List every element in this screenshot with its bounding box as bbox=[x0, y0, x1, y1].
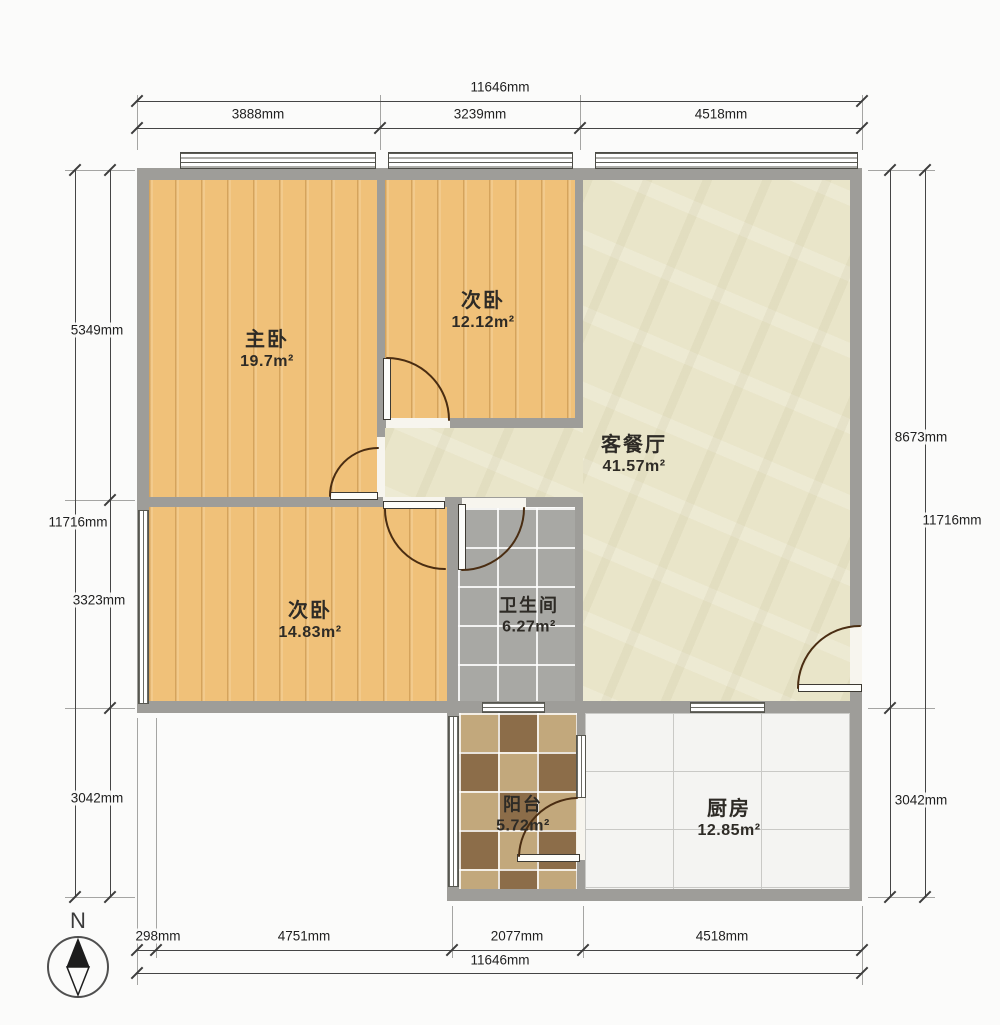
ext-line bbox=[156, 718, 157, 958]
label-bedroom2: 次卧 12.12m² bbox=[451, 284, 514, 332]
floor-plan: N 主卧 19.7m² 次卧 12.12m² 客餐厅 41.57m² 次卧 14… bbox=[0, 0, 1000, 1025]
ext-line bbox=[137, 718, 138, 985]
dim-line-bottom-segments bbox=[137, 950, 862, 951]
ext-line bbox=[137, 95, 138, 150]
dim-label: 3888mm bbox=[230, 107, 287, 122]
room-name: 阳台 bbox=[496, 791, 550, 817]
ext-line bbox=[862, 95, 863, 150]
dim-line-left-total bbox=[75, 170, 76, 897]
opening-balcony-door bbox=[577, 798, 585, 860]
label-master-bedroom: 主卧 19.7m² bbox=[240, 323, 294, 371]
opening-master-door bbox=[377, 437, 385, 497]
dim-label-right-total: 11716mm bbox=[920, 513, 983, 528]
compass-circle bbox=[48, 937, 108, 997]
dim-label: 3042mm bbox=[69, 791, 126, 806]
ext-line bbox=[580, 95, 581, 150]
room-area: 12.85m² bbox=[697, 822, 760, 840]
door-leaf-bathroom bbox=[458, 504, 466, 570]
dim-label: 2077mm bbox=[489, 929, 546, 944]
window-bedroom2-top bbox=[388, 152, 573, 169]
wall-outer-bottom bbox=[447, 889, 862, 901]
door-leaf-master bbox=[330, 492, 378, 500]
dim-label: 8673mm bbox=[893, 430, 950, 445]
door-leaf-bedroom3 bbox=[383, 501, 445, 509]
room-name: 主卧 bbox=[240, 323, 294, 352]
wall-outer-right bbox=[850, 168, 862, 901]
wall-bedroom3-bottom bbox=[137, 701, 462, 713]
window-bedroom3-left bbox=[138, 510, 149, 704]
room-area: 12.12m² bbox=[451, 314, 514, 332]
window-kitchen-top bbox=[690, 702, 765, 713]
wall-outer-top bbox=[137, 168, 862, 180]
room-area: 6.27m² bbox=[499, 619, 559, 637]
door-leaf-balcony bbox=[517, 854, 580, 862]
dim-label: 4751mm bbox=[276, 929, 333, 944]
dim-line-right-total bbox=[925, 170, 926, 897]
room-area: 14.83m² bbox=[278, 624, 341, 642]
room-area: 19.7m² bbox=[240, 353, 294, 371]
dim-line-right-segments bbox=[890, 170, 891, 897]
compass-north-label: N bbox=[70, 908, 86, 934]
window-balcony-kitchen-panel bbox=[576, 735, 586, 798]
dim-label: 3323mm bbox=[71, 593, 128, 608]
dim-label: 4518mm bbox=[693, 107, 750, 122]
label-balcony: 阳台 5.72m² bbox=[496, 791, 550, 836]
dim-label: 3042mm bbox=[893, 793, 950, 808]
room-name: 客餐厅 bbox=[601, 428, 667, 457]
room-area: 41.57m² bbox=[601, 458, 667, 476]
dim-line-left-segments bbox=[110, 170, 111, 897]
window-living-top bbox=[595, 152, 858, 169]
north-compass bbox=[48, 937, 108, 997]
door-leaf-entry bbox=[798, 684, 862, 692]
dim-line-top-segments bbox=[137, 128, 862, 129]
floor-hallway bbox=[385, 428, 583, 501]
dim-label: 3239mm bbox=[452, 107, 509, 122]
dim-label-top-total: 11646mm bbox=[468, 80, 531, 95]
dim-label: 4518mm bbox=[694, 929, 751, 944]
dim-line-bottom-total bbox=[137, 973, 862, 974]
label-kitchen: 厨房 12.85m² bbox=[697, 792, 760, 840]
label-bathroom: 卫生间 6.27m² bbox=[499, 592, 559, 637]
window-balcony-top bbox=[482, 702, 545, 713]
opening-bathroom-door bbox=[462, 498, 526, 508]
dim-label: 5349mm bbox=[69, 323, 126, 338]
room-name: 卫生间 bbox=[499, 592, 559, 618]
opening-entry-door bbox=[850, 626, 862, 688]
window-balcony-left bbox=[448, 716, 459, 887]
room-name: 厨房 bbox=[697, 792, 760, 821]
compass-needle-south bbox=[67, 967, 89, 995]
label-bedroom3: 次卧 14.83m² bbox=[278, 594, 341, 642]
opening-bedroom2-door bbox=[386, 418, 450, 428]
door-leaf-bedroom2 bbox=[383, 358, 391, 420]
dim-label-bottom-total: 11646mm bbox=[468, 953, 531, 968]
room-name: 次卧 bbox=[278, 594, 341, 623]
room-name: 次卧 bbox=[451, 284, 514, 313]
room-area: 5.72m² bbox=[496, 818, 550, 836]
wall-bedroom2-right bbox=[575, 180, 583, 428]
ext-line bbox=[380, 95, 381, 150]
dim-label-left-total: 11716mm bbox=[46, 515, 109, 530]
label-living-dining: 客餐厅 41.57m² bbox=[601, 428, 667, 476]
window-master-top bbox=[180, 152, 376, 169]
dim-line-top-total bbox=[137, 101, 862, 102]
wall-bathroom-left bbox=[447, 507, 458, 701]
dim-label: 298mm bbox=[133, 929, 182, 944]
wall-bathroom-right bbox=[575, 500, 583, 701]
compass-needle-north bbox=[67, 939, 89, 967]
